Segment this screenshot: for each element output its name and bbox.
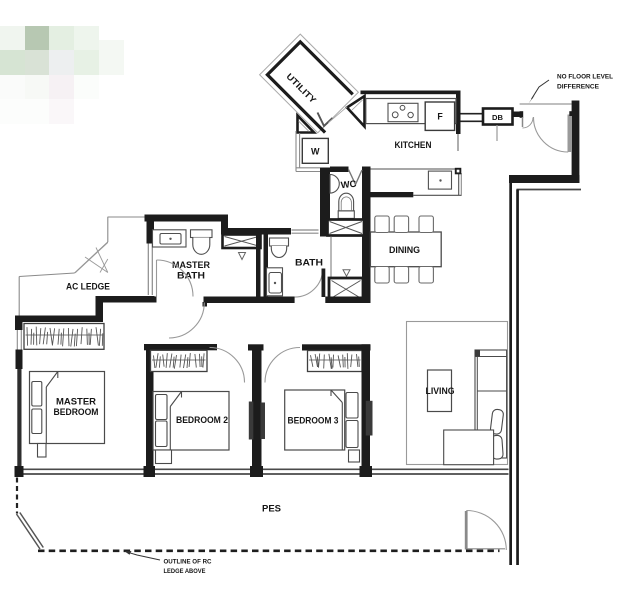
svg-text:F: F	[437, 112, 443, 122]
svg-text:DB: DB	[492, 113, 503, 122]
svg-text:BEDROOM 2: BEDROOM 2	[176, 415, 228, 425]
svg-text:AC LEDGE: AC LEDGE	[66, 282, 110, 292]
svg-text:MASTER: MASTER	[56, 397, 96, 407]
svg-text:LIVING: LIVING	[426, 386, 455, 396]
svg-text:BATH: BATH	[177, 271, 205, 281]
svg-text:DINING: DINING	[389, 245, 420, 255]
svg-text:BEDROOM 3: BEDROOM 3	[288, 416, 339, 426]
svg-text:BATH: BATH	[295, 258, 323, 268]
svg-text:W: W	[311, 147, 320, 157]
svg-text:PES: PES	[262, 504, 281, 514]
svg-text:KITCHEN: KITCHEN	[395, 140, 432, 150]
svg-text:LEDGE ABOVE: LEDGE ABOVE	[164, 568, 206, 575]
svg-text:MASTER: MASTER	[172, 260, 210, 270]
svg-text:WC: WC	[340, 178, 357, 191]
svg-text:BEDROOM: BEDROOM	[54, 407, 99, 417]
svg-text:OUTLINE OF RC: OUTLINE OF RC	[164, 559, 212, 566]
svg-text:DIFFERENCE: DIFFERENCE	[557, 84, 599, 91]
svg-text:NO FLOOR LEVEL: NO FLOOR LEVEL	[557, 74, 613, 81]
